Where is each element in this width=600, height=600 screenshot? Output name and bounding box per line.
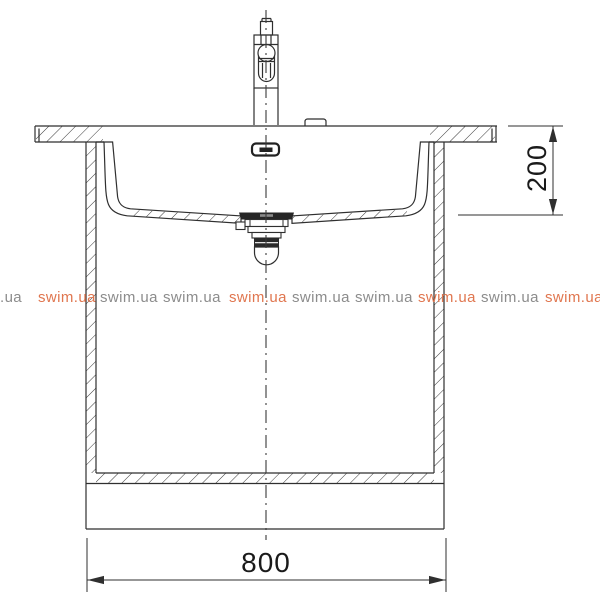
arrow-right-icon xyxy=(429,576,446,584)
arrow-down-icon xyxy=(549,199,557,215)
deck-plug xyxy=(305,119,326,126)
countertop-right-hatch xyxy=(430,127,495,143)
watermark: swim.ua xyxy=(229,289,287,306)
watermark: swim.ua xyxy=(355,289,413,306)
bottom-hatch xyxy=(96,474,434,484)
right-wall-hatch xyxy=(434,142,444,473)
width-dimension-label: 800 xyxy=(241,547,291,578)
arrow-left-icon xyxy=(88,576,105,584)
watermark: swim.ua xyxy=(481,289,539,306)
depth-dimension-label: 200 xyxy=(522,144,552,192)
watermark: .ua xyxy=(0,289,22,306)
watermark: swim.ua xyxy=(545,289,600,306)
watermark: swim.ua xyxy=(418,289,476,306)
sink-technical-drawing: 200 800 .ua swim.ua swim.ua swim.ua swim… xyxy=(0,0,600,600)
sink-box-section xyxy=(86,142,444,529)
watermark: swim.ua xyxy=(38,289,96,306)
countertop-left-hatch xyxy=(36,127,103,143)
watermark: swim.ua xyxy=(100,289,158,306)
drain-assembly xyxy=(236,213,294,265)
watermark: swim.ua xyxy=(163,289,221,306)
arrow-up-icon xyxy=(549,127,557,143)
sink-bowl-section xyxy=(96,142,434,223)
watermark: swim.ua xyxy=(292,289,350,306)
left-wall-hatch xyxy=(87,142,97,473)
